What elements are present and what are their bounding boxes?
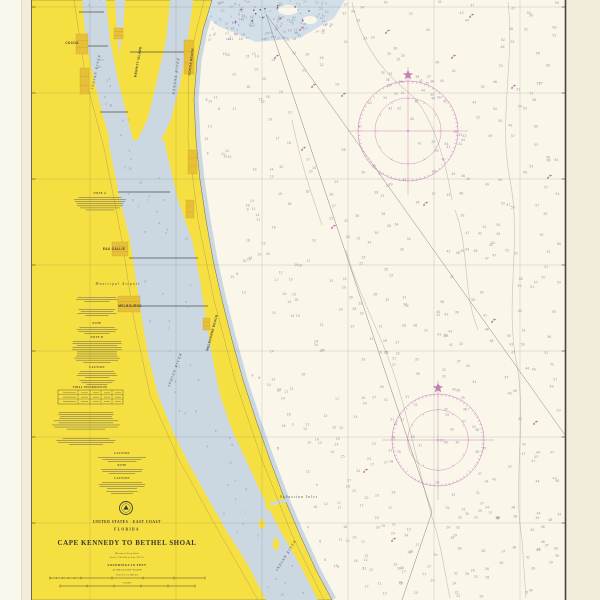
table-cell-mark xyxy=(104,397,110,398)
place-label: Sebastian Inlet xyxy=(280,495,318,499)
sounding: 5 xyxy=(303,28,305,32)
sounding: 6 xyxy=(99,0,101,2)
sounding: 15 xyxy=(341,454,345,458)
sounding: 34 xyxy=(485,480,489,484)
sounding: 34 xyxy=(403,302,407,306)
sounding: 20 xyxy=(332,426,336,430)
structure-speck xyxy=(262,17,263,18)
sounding: 36 xyxy=(455,311,459,315)
sounding: 46 xyxy=(493,80,497,84)
sounding: 7 xyxy=(289,0,291,3)
sounding: 53 xyxy=(546,250,550,254)
sounding: 4 xyxy=(174,380,176,384)
sounding: 37 xyxy=(432,192,436,196)
sounding: 37 xyxy=(386,184,390,188)
sounding: 14 xyxy=(270,349,274,353)
sounding: 4 xyxy=(296,2,298,6)
sounding: 25 xyxy=(474,575,478,579)
sounding: 28 xyxy=(485,575,489,579)
sounding: 16 xyxy=(230,27,234,31)
note-text-line xyxy=(100,486,145,487)
sounding: 31 xyxy=(462,507,466,511)
table-cell-mark xyxy=(115,397,121,398)
sounding: 16 xyxy=(220,0,224,4)
structure-speck xyxy=(277,5,278,6)
sounding: 17 xyxy=(347,479,351,483)
sounding: 27 xyxy=(344,3,348,7)
note-text-line xyxy=(102,471,141,472)
sounding: 8 xyxy=(246,16,248,20)
note-text-line xyxy=(101,469,143,470)
sounding: 38 xyxy=(386,78,390,82)
note-text-line xyxy=(81,311,113,312)
sounding: 18 xyxy=(343,525,347,529)
sounding: 24 xyxy=(279,90,283,94)
sounding: 51 xyxy=(530,285,534,289)
sounding: 32 xyxy=(456,525,460,529)
sounding: 13 xyxy=(271,378,275,382)
sounding: 31 xyxy=(392,357,396,361)
sounding: 12 xyxy=(262,242,266,246)
table-cell-mark xyxy=(63,393,76,394)
sounding: 38 xyxy=(440,300,444,304)
sounding: 20 xyxy=(414,591,418,595)
sounding: 13 xyxy=(208,125,212,129)
note-heading: CAUTION xyxy=(89,366,105,369)
sounding: 31 xyxy=(390,418,394,422)
sounding: 9 xyxy=(316,483,318,487)
sounding: 10 xyxy=(321,28,325,32)
sounding: 5 xyxy=(165,231,167,235)
sounding: 3 xyxy=(236,529,238,533)
sounding: 52 xyxy=(501,38,505,42)
note-text-line xyxy=(77,352,117,353)
sounding: 2 xyxy=(321,3,323,7)
sounding: 31 xyxy=(380,194,384,198)
note-text-line xyxy=(52,425,120,426)
sounding: 14 xyxy=(334,442,338,446)
sounding: 29 xyxy=(465,572,469,576)
sounding: 10 xyxy=(226,53,230,57)
sounding: 53 xyxy=(529,164,533,168)
structure-speck xyxy=(279,18,280,19)
sounding: 7 xyxy=(138,204,140,208)
sounding: 48 xyxy=(509,27,513,31)
sounding: 37 xyxy=(545,544,549,548)
sounding: 9 xyxy=(253,23,255,27)
sounding: 20 xyxy=(353,536,357,540)
note-text-line xyxy=(58,414,114,415)
sounding: 37 xyxy=(488,511,492,515)
sounding: 15 xyxy=(246,0,250,4)
sounding: 32 xyxy=(445,506,449,510)
sounding: 28 xyxy=(411,435,415,439)
note-text-line xyxy=(74,358,120,359)
sounding: 60 xyxy=(534,124,538,128)
sounding: 2 xyxy=(128,118,130,122)
note-text-line xyxy=(86,210,115,211)
sounding: 2 xyxy=(229,35,231,39)
sounding: 53 xyxy=(511,206,515,210)
sounding: 34 xyxy=(367,241,371,245)
sounding: 52 xyxy=(476,115,480,119)
sounding: 11 xyxy=(337,506,341,510)
sounding: 26 xyxy=(471,568,475,572)
sounding: 13 xyxy=(383,591,387,595)
sounding: 20 xyxy=(342,286,346,290)
urban-area xyxy=(188,150,197,174)
sounding: 14 xyxy=(303,0,307,3)
sounding: 31 xyxy=(525,591,529,595)
sounding: 15 xyxy=(270,35,274,39)
sounding: 51 xyxy=(522,329,526,333)
sounding: 54 xyxy=(518,105,522,109)
sounding: 28 xyxy=(485,567,489,571)
sounding: 41 xyxy=(438,0,442,4)
rose-center-dot xyxy=(437,439,439,441)
sounding: 39 xyxy=(479,290,483,294)
sounding: 33 xyxy=(394,92,398,96)
sounding: 9 xyxy=(223,512,225,516)
sounding: 50 xyxy=(521,342,525,346)
sounding: 34 xyxy=(383,96,387,100)
sounding: 30 xyxy=(349,295,353,299)
sounding: 15 xyxy=(234,32,238,36)
sounding: 6 xyxy=(213,32,215,36)
sounding: 10 xyxy=(307,441,311,445)
sounding: 20 xyxy=(279,165,283,169)
sounding: 39 xyxy=(555,554,559,558)
sounding: 30 xyxy=(400,248,404,252)
sounding: 4 xyxy=(206,445,208,449)
sounding: 26 xyxy=(329,192,333,196)
note-text-line xyxy=(99,484,146,485)
sounding: 40 xyxy=(431,97,435,101)
sounding: 43 xyxy=(530,528,534,532)
sounding: 43 xyxy=(448,329,452,333)
sounding: 39 xyxy=(471,298,475,302)
sounding: 6 xyxy=(234,2,236,6)
sounding: 10 xyxy=(345,539,349,543)
sounding: 37 xyxy=(457,360,461,364)
sounding: 16 xyxy=(313,505,317,509)
sounding: 45 xyxy=(557,512,561,516)
sounding: 9 xyxy=(292,422,294,426)
sounding: 22 xyxy=(342,12,346,16)
sounding: 5 xyxy=(124,166,126,170)
sounding: 12 xyxy=(294,30,298,34)
projection-line: Mercator Projection xyxy=(115,552,139,555)
sounding: 23 xyxy=(288,29,292,33)
sounding: 50 xyxy=(498,119,502,123)
sounding: 30 xyxy=(433,553,437,557)
sounding: 12 xyxy=(290,387,294,391)
sounding: 8 xyxy=(324,558,326,562)
sounding: 51 xyxy=(544,351,548,355)
sounding: 17 xyxy=(388,506,392,510)
sounding: 9 xyxy=(275,577,277,581)
sounding: 18 xyxy=(246,85,250,89)
structure-speck xyxy=(277,7,278,8)
sounding: 32 xyxy=(442,368,446,372)
note-text-line xyxy=(73,341,121,342)
sounding: 2 xyxy=(244,0,246,3)
sounding: 51 xyxy=(516,88,520,92)
sounding: 26 xyxy=(479,595,483,599)
sounding: 3 xyxy=(300,21,302,25)
sounding: 2 xyxy=(188,304,190,308)
sounding: 30 xyxy=(455,441,459,445)
sounding: 45 xyxy=(496,232,500,236)
sounding: 8 xyxy=(254,5,256,9)
nautical-chart-svg: 3447363543162839522314152343381631391051… xyxy=(0,0,600,600)
sounding: 12 xyxy=(222,52,226,56)
sounding: 33 xyxy=(389,274,393,278)
sounding: 22 xyxy=(360,311,364,315)
sounding: 38 xyxy=(554,547,558,551)
sounding: 46 xyxy=(459,192,463,196)
sounding: 18 xyxy=(298,263,302,267)
sounding: 18 xyxy=(398,580,402,584)
datum-line: AT MEAN LOW WATER xyxy=(112,569,142,572)
sounding: 17 xyxy=(360,503,364,507)
sounding: 12 xyxy=(324,502,328,506)
sounding: 7 xyxy=(109,77,111,81)
sounding: 20 xyxy=(266,252,270,256)
urban-area xyxy=(186,200,194,218)
sounding: 5 xyxy=(277,446,279,450)
sounding: 40 xyxy=(441,157,445,161)
sounding: 11 xyxy=(221,152,225,156)
sounding: 8 xyxy=(209,34,211,38)
scale-bar-label-2: YARDS xyxy=(123,582,132,585)
sounding: 37 xyxy=(508,465,512,469)
urban-area xyxy=(80,68,89,94)
note-heading: NOTE B xyxy=(91,336,104,339)
sounding: 24 xyxy=(353,415,357,419)
sounding: 32 xyxy=(397,107,401,111)
sounding: 41 xyxy=(450,275,454,279)
sounding: 8 xyxy=(195,409,197,413)
sounding: 6 xyxy=(164,198,166,202)
sounding: 30 xyxy=(374,231,378,235)
sounding: 10 xyxy=(214,21,218,25)
sounding: 41 xyxy=(401,91,405,95)
sounding: 50 xyxy=(507,334,511,338)
sounding: 25 xyxy=(329,279,333,283)
sounding: 60 xyxy=(553,25,557,29)
sounding: 31 xyxy=(402,295,406,299)
sounding: 44 xyxy=(536,511,540,515)
sounding: 28 xyxy=(481,549,485,553)
sounding: 17 xyxy=(245,36,249,40)
sounding: 14 xyxy=(314,343,318,347)
sounding: 13 xyxy=(323,414,327,418)
sounding: 27 xyxy=(392,363,396,367)
sounding: 23 xyxy=(319,7,323,11)
left-margin-light xyxy=(0,0,21,600)
sounding: 14 xyxy=(225,149,229,153)
sounding: 47 xyxy=(522,452,526,456)
sounding: 15 xyxy=(232,73,236,77)
sounding: 39 xyxy=(478,509,482,513)
sounding: 48 xyxy=(548,518,552,522)
sounding: 16 xyxy=(323,23,327,27)
sounding: 44 xyxy=(421,89,425,93)
sounding: 7 xyxy=(244,510,246,514)
sounding: 10 xyxy=(139,180,143,184)
sounding: 31 xyxy=(418,444,422,448)
sounding: 3 xyxy=(257,533,259,537)
sounding: 34 xyxy=(485,505,489,509)
note-text-line xyxy=(102,482,142,483)
sounding: 37 xyxy=(462,420,466,424)
table-cell-mark xyxy=(93,401,99,402)
sounding: 37 xyxy=(427,75,431,79)
sounding: 5 xyxy=(162,292,164,296)
chart-title: CAPE KENNEDY TO BETHEL SHOAL xyxy=(58,539,197,547)
note-text-line xyxy=(108,461,137,462)
sounding: 43 xyxy=(446,249,450,253)
sounding: 37 xyxy=(480,501,484,505)
sounding: 31 xyxy=(378,324,382,328)
region-line: UNITED STATES · EAST COAST xyxy=(93,520,161,524)
structure-speck xyxy=(255,13,256,14)
sounding: 31 xyxy=(369,337,373,341)
sounding: 12 xyxy=(220,8,224,12)
sounding: 31 xyxy=(388,72,392,76)
sounding: 37 xyxy=(502,550,506,554)
note-text-line xyxy=(77,203,124,204)
sounding: 20 xyxy=(309,170,313,174)
sounding: 17 xyxy=(232,107,236,111)
note-text-line xyxy=(54,420,118,421)
note-text-line xyxy=(79,380,114,381)
structure-speck xyxy=(253,9,254,10)
sounding: 7 xyxy=(147,199,149,203)
sounding: 43 xyxy=(444,312,448,316)
sounding: 12 xyxy=(369,568,373,572)
sounding: 49 xyxy=(508,124,512,128)
sounding: 10 xyxy=(282,29,286,33)
sounding: 47 xyxy=(492,254,496,258)
sounding: 27 xyxy=(358,124,362,128)
table-cell-mark xyxy=(63,397,76,398)
note-heading: NOTE xyxy=(92,322,101,325)
sounding: 9 xyxy=(109,84,111,88)
sounding: 51 xyxy=(544,265,548,269)
structure-speck xyxy=(308,10,309,11)
sounding: 27 xyxy=(372,396,376,400)
note-text-line xyxy=(111,493,133,494)
sounding: 13 xyxy=(269,175,273,179)
sounding: 39 xyxy=(535,516,539,520)
sounding: 22 xyxy=(292,51,296,55)
sounding: 21 xyxy=(392,522,396,526)
sounding: 44 xyxy=(525,366,529,370)
structure-speck xyxy=(294,6,295,7)
sounding: 35 xyxy=(415,358,419,362)
structure-speck xyxy=(302,20,303,21)
sounding: 6 xyxy=(156,209,158,213)
note-text-line xyxy=(77,375,118,376)
sounding: 36 xyxy=(463,407,467,411)
sounding: 13 xyxy=(298,34,302,38)
sounding: 8 xyxy=(179,409,181,413)
sounding: 21 xyxy=(422,572,426,576)
sounding: 39 xyxy=(445,413,449,417)
sounding: 57 xyxy=(539,81,543,85)
sounding: 47 xyxy=(470,3,474,7)
sounding: 31 xyxy=(476,491,480,495)
sounding: 27 xyxy=(395,341,399,345)
sounding: 3 xyxy=(242,7,244,11)
sounding: 26 xyxy=(383,339,387,343)
sounding: 31 xyxy=(356,237,360,241)
sounding: 44 xyxy=(444,142,448,146)
note-text-line xyxy=(84,301,109,302)
note-text-line xyxy=(59,412,113,413)
sounding: 34 xyxy=(426,28,430,32)
sounding: 21 xyxy=(388,448,392,452)
sounding: 3 xyxy=(190,363,192,367)
sounding: 23 xyxy=(375,494,379,498)
sounding: 38 xyxy=(513,515,517,519)
sounding: 10 xyxy=(128,167,132,171)
sounding: 50 xyxy=(496,223,500,227)
sounding: 44 xyxy=(491,241,495,245)
sounding: 39 xyxy=(399,80,403,84)
sounding: 55 xyxy=(552,310,556,314)
structure-speck xyxy=(235,21,236,22)
sounding: 19 xyxy=(294,298,298,302)
sounding: 6 xyxy=(299,2,301,6)
sounding: 28 xyxy=(352,307,356,311)
urban-area xyxy=(114,28,123,39)
sounding: 50 xyxy=(527,11,531,15)
sounding: 9 xyxy=(247,208,249,212)
sounding: 5 xyxy=(304,22,306,26)
sounding: 28 xyxy=(389,459,393,463)
sounding: 16 xyxy=(246,238,250,242)
note-text-line xyxy=(60,416,112,417)
sounding: 16 xyxy=(301,372,305,376)
sounding: 27 xyxy=(384,461,388,465)
sounding: 33 xyxy=(439,439,443,443)
sounding: 19 xyxy=(278,192,282,196)
sounding: 36 xyxy=(415,201,419,205)
sounding: 18 xyxy=(305,190,309,194)
sounding: 2 xyxy=(212,27,214,31)
structure-speck xyxy=(240,9,241,10)
note-text-line xyxy=(84,333,109,334)
sounding: 24 xyxy=(446,526,450,530)
sounding: 42 xyxy=(452,69,456,73)
sounding: 6 xyxy=(207,152,209,156)
sounding: 39 xyxy=(531,566,535,570)
sounding: 2 xyxy=(286,36,288,40)
note-heading: NOTE xyxy=(117,464,126,467)
sounding: 14 xyxy=(287,300,291,304)
sounding: 46 xyxy=(456,251,460,255)
note-text-line xyxy=(77,205,123,206)
sounding: 11 xyxy=(361,539,365,543)
rose-center-dot xyxy=(407,130,409,132)
sounding: 26 xyxy=(373,293,377,297)
sounding: 43 xyxy=(553,476,557,480)
sounding: 17 xyxy=(277,37,281,41)
table-cell-mark xyxy=(104,393,110,394)
